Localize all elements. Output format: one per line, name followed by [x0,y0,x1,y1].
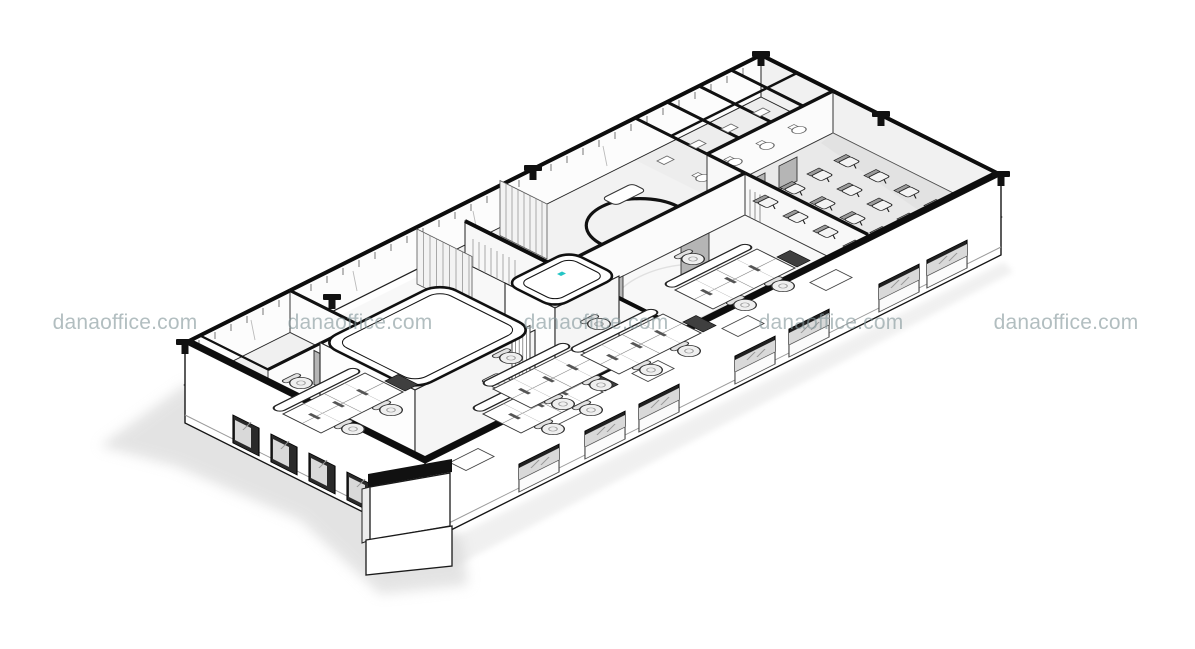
watermark: danaoffice.com [994,311,1139,335]
watermark: danaoffice.com [524,311,669,335]
watermark: danaoffice.com [288,311,433,335]
watermark: danaoffice.com [53,311,198,335]
entrance-core [362,459,452,575]
page: danaoffice.com danaoffice.com danaoffice… [0,0,1195,649]
watermark: danaoffice.com [759,311,904,335]
